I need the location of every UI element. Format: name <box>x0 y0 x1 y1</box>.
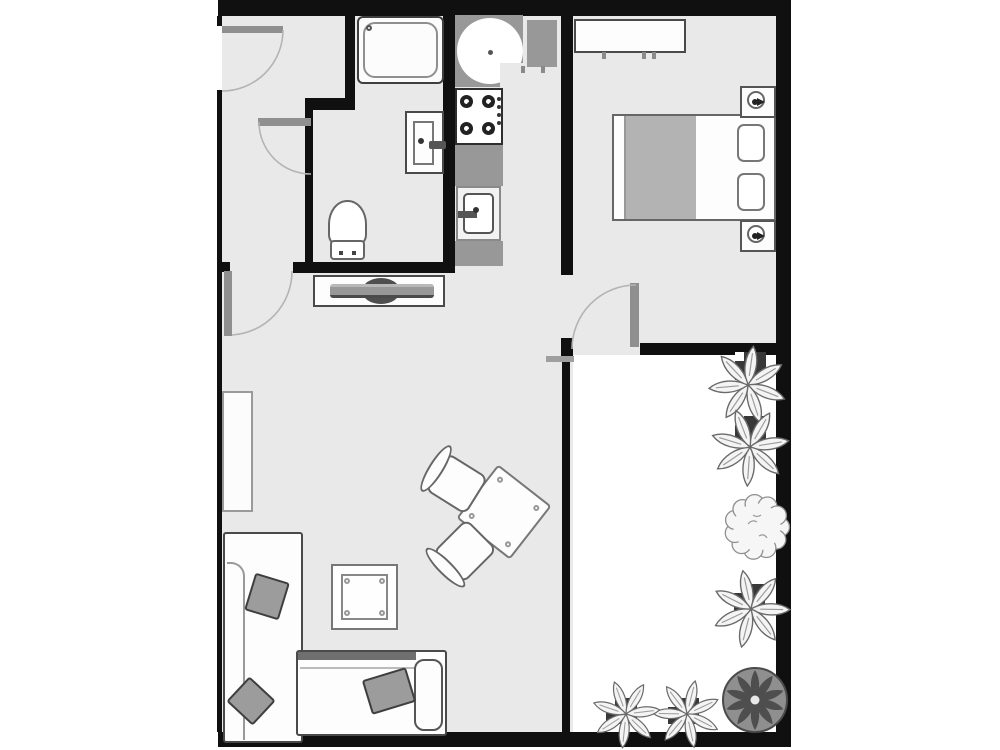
lamp-icon <box>747 91 765 109</box>
wall-bedroom-west-stub <box>561 338 573 357</box>
entrance-door-leaf <box>222 26 283 33</box>
bathtub <box>357 16 444 84</box>
table-dot <box>379 610 385 616</box>
stove-knob <box>497 113 501 117</box>
stove-knob <box>497 97 501 101</box>
wall-shelf <box>222 391 253 512</box>
bed-blanket <box>626 116 696 219</box>
living-room-door-leaf <box>224 271 232 336</box>
patio-floor <box>573 355 776 732</box>
toilet-button <box>352 251 356 255</box>
table-dot <box>344 578 350 584</box>
stove-knob <box>497 121 501 125</box>
wall-hall-south <box>293 262 455 273</box>
wall-bath-zig-v1 <box>345 0 355 110</box>
wall-kitchen <box>443 0 455 273</box>
floor-plan <box>0 0 1000 750</box>
kitchen-sink <box>456 186 501 241</box>
coffee-table <box>331 564 398 630</box>
stove-burner <box>482 95 495 108</box>
stove-burner <box>460 95 473 108</box>
patio-threshold <box>546 356 574 362</box>
table-dot <box>379 578 385 584</box>
stove-burner <box>460 122 473 135</box>
counter-tick <box>521 66 525 73</box>
kitchen-basin-dot <box>488 50 493 55</box>
stove <box>455 88 503 145</box>
tv-stand <box>313 275 445 307</box>
kitchen-corner-block <box>527 20 557 67</box>
washbasin-faucet-dot <box>418 138 424 144</box>
wardrobe <box>574 19 686 53</box>
wall-right <box>776 0 791 747</box>
washbasin-faucet-bar <box>429 141 446 149</box>
kitchen-faucet-dot <box>473 207 479 213</box>
wall-left-stub <box>217 16 222 26</box>
table-dot <box>496 476 504 484</box>
stove-burner <box>482 122 495 135</box>
kitchen-counter-low <box>455 241 503 266</box>
tv-screen <box>330 284 434 298</box>
wardrobe-handle <box>642 52 646 59</box>
bed-pillow <box>737 124 765 162</box>
sofa-back-band <box>298 652 416 660</box>
stove-knob <box>497 105 501 109</box>
nightstand <box>740 86 776 118</box>
bathroom-door-leaf <box>258 118 311 126</box>
wardrobe-handle <box>602 52 606 59</box>
wardrobe-handle <box>652 52 656 59</box>
wall-top <box>218 0 791 16</box>
terrace-door-leaf <box>630 283 639 347</box>
double-bed <box>612 114 776 221</box>
wall-bedroom-west <box>561 16 573 275</box>
nightstand <box>740 220 776 252</box>
bathtub-inner <box>363 22 438 78</box>
counter-tick <box>541 66 545 73</box>
lamp-icon <box>747 225 765 243</box>
table-dot <box>504 540 512 548</box>
toilet-tank <box>330 240 365 260</box>
kitchen-corner-notch <box>500 63 523 87</box>
table-dot <box>532 504 540 512</box>
wall-bedroom-south <box>640 343 776 355</box>
washbasin <box>405 111 444 174</box>
wall-patio-divider <box>562 357 570 732</box>
table-dot <box>344 610 350 616</box>
bed-pillow <box>737 173 765 211</box>
bathtub-drain <box>366 25 372 31</box>
sofa-armrest <box>414 659 443 731</box>
toilet-button <box>339 251 343 255</box>
kitchen-counter <box>455 145 503 186</box>
